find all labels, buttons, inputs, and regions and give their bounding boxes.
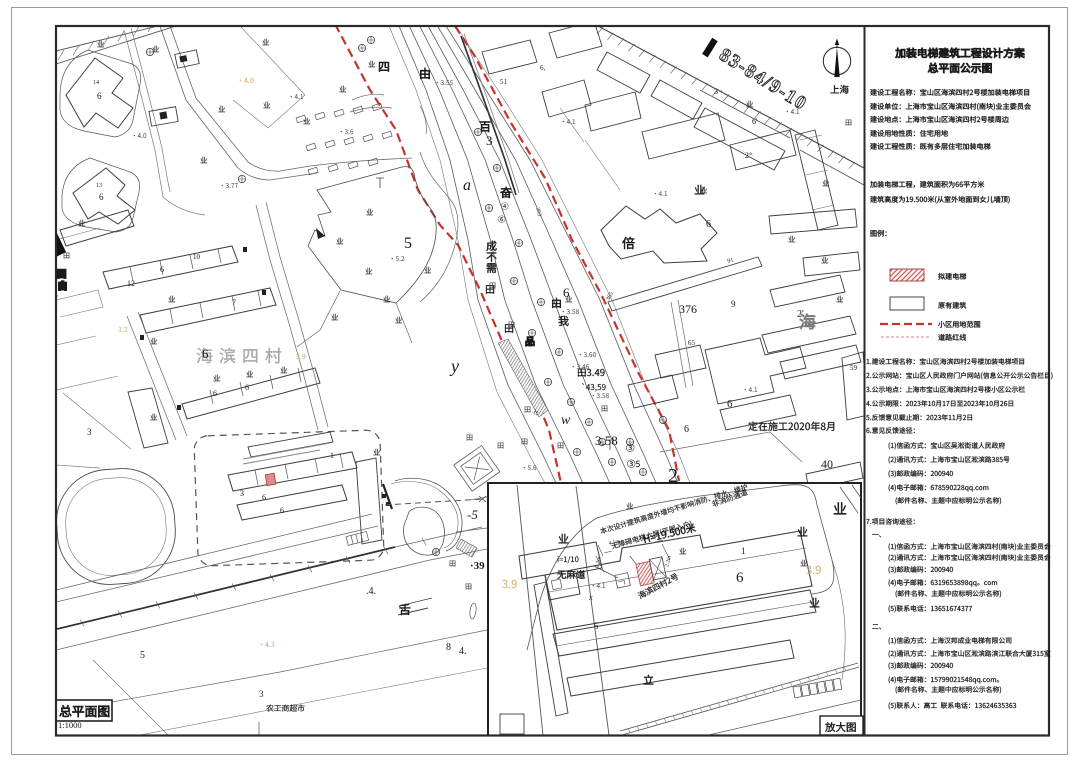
svg-text:376: 376 (679, 302, 697, 316)
svg-text:6: 6 (213, 389, 217, 398)
svg-text:3: 3 (259, 689, 264, 699)
svg-text:3: 3 (87, 427, 92, 437)
svg-text:353: 353 (534, 207, 542, 217)
svg-text:w: w (561, 413, 571, 428)
svg-text:7: 7 (232, 298, 236, 307)
svg-text:a: a (463, 177, 471, 194)
svg-text:2: 2 (668, 465, 678, 487)
svg-text:59: 59 (850, 364, 858, 372)
svg-text:8: 8 (446, 642, 451, 653)
svg-text:·39: ·39 (470, 560, 485, 572)
svg-text:14: 14 (93, 80, 99, 86)
svg-text:6: 6 (160, 265, 164, 274)
svg-text:1:1000: 1:1000 (58, 720, 82, 730)
svg-text:6: 6 (563, 285, 570, 300)
svg-text:51: 51 (500, 78, 508, 86)
svg-text:5: 5 (404, 235, 412, 252)
svg-text:6: 6 (736, 570, 744, 586)
svg-text:10: 10 (193, 253, 201, 261)
svg-text:y: y (449, 356, 459, 376)
svg-text:.4.: .4. (366, 586, 376, 597)
svg-text:6: 6 (684, 424, 689, 435)
svg-text:9: 9 (731, 299, 736, 309)
svg-text:91: 91 (727, 257, 734, 264)
svg-text:6': 6' (752, 117, 758, 126)
svg-text:40: 40 (821, 457, 833, 471)
svg-text:12: 12 (127, 279, 135, 288)
svg-text:3: 3 (486, 133, 493, 148)
svg-text:6: 6 (706, 219, 711, 230)
svg-text:3: 3 (240, 489, 244, 498)
svg-text:1: 1 (741, 546, 746, 556)
svg-text:4.: 4. (459, 646, 467, 657)
svg-text:5: 5 (140, 650, 145, 661)
svg-text:6: 6 (245, 383, 249, 392)
svg-text:2': 2' (797, 309, 804, 320)
svg-text:x: x (588, 593, 593, 602)
svg-text:65: 65 (688, 339, 696, 347)
svg-text:-5: -5 (467, 507, 478, 522)
svg-text:6: 6 (202, 346, 209, 361)
svg-text:13: 13 (96, 183, 102, 189)
svg-text:6,: 6, (540, 64, 546, 72)
svg-text:6: 6 (727, 398, 733, 410)
svg-text:3.58: 3.58 (595, 433, 618, 448)
svg-text:1: 1 (330, 451, 334, 460)
svg-text:6: 6 (280, 506, 284, 515)
svg-text:6: 6 (262, 493, 266, 502)
svg-text:83-84/9-10: 83-84/9-10 (715, 44, 810, 115)
svg-text:3 ·: 3 · (714, 87, 723, 96)
svg-text:6: 6 (99, 192, 104, 202)
svg-text:2°: 2° (745, 151, 752, 160)
svg-text:5: 5 (594, 621, 599, 631)
svg-text:6: 6 (97, 91, 102, 101)
